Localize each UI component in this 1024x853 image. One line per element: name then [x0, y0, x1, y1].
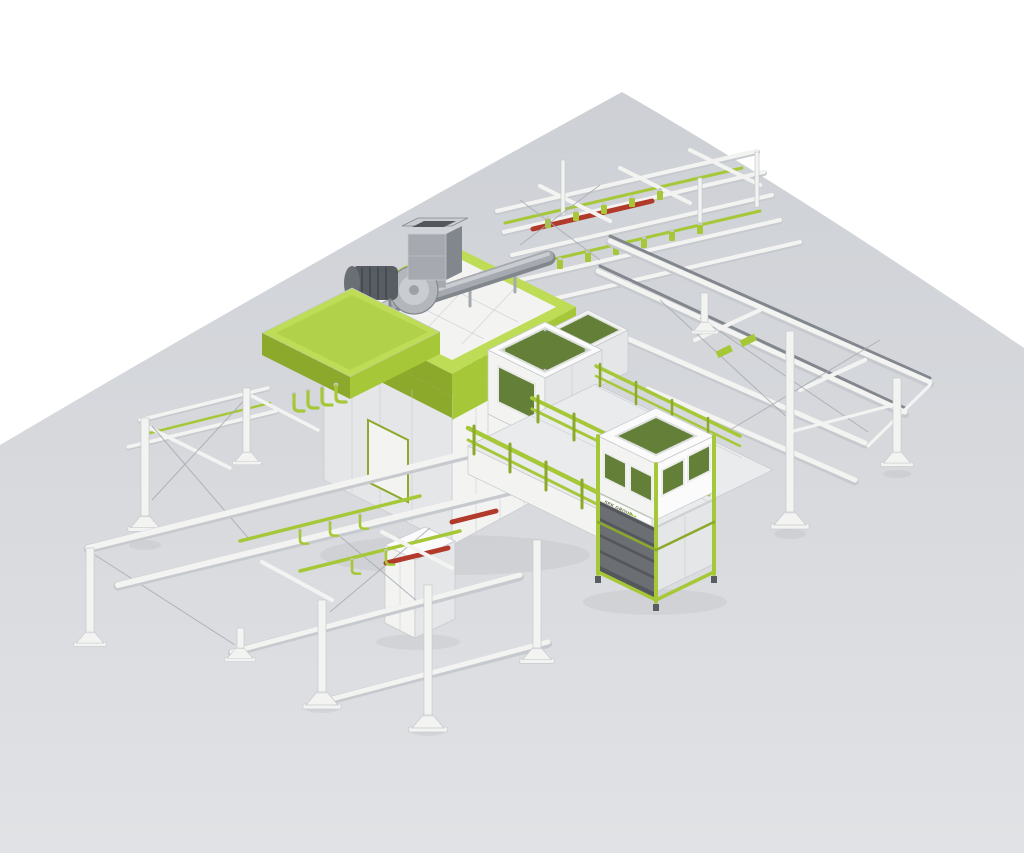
filter-recovery-unit: SPK GROUP [595, 408, 717, 611]
unit-foot [595, 576, 601, 583]
unit-foot [653, 604, 659, 611]
machine-render-canvas: SPK GROUP [0, 0, 1024, 853]
industrial-plant-render: SPK GROUP [0, 0, 1024, 853]
unit-foot [711, 576, 717, 583]
